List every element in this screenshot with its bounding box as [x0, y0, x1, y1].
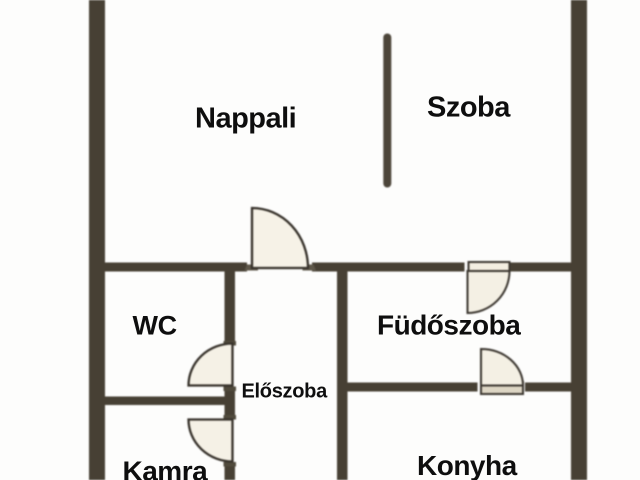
svg-text:WC: WC: [133, 311, 177, 341]
svg-text:Előszoba: Előszoba: [242, 381, 329, 403]
svg-text:Kamra: Kamra: [123, 456, 209, 480]
svg-text:Nappali: Nappali: [195, 103, 296, 135]
svg-text:Füdőszoba: Füdőszoba: [377, 310, 521, 341]
svg-text:Szoba: Szoba: [427, 92, 511, 124]
svg-text:Konyha: Konyha: [417, 450, 518, 480]
